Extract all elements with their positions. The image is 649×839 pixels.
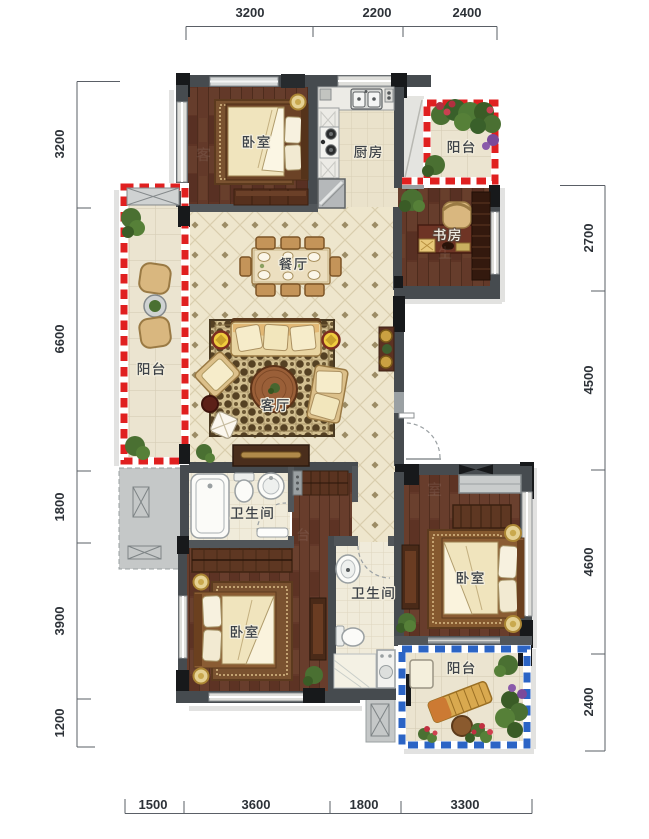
svg-text:3600: 3600 <box>242 797 271 812</box>
svg-text:2400: 2400 <box>581 688 596 717</box>
svg-text:3200: 3200 <box>236 5 265 20</box>
svg-text:4500: 4500 <box>581 366 596 395</box>
svg-text:3300: 3300 <box>451 797 480 812</box>
svg-text:3200: 3200 <box>52 130 67 159</box>
svg-text:2200: 2200 <box>363 5 392 20</box>
svg-text:1500: 1500 <box>139 797 168 812</box>
svg-text:2400: 2400 <box>453 5 482 20</box>
svg-text:1200: 1200 <box>52 709 67 738</box>
svg-text:1800: 1800 <box>52 493 67 522</box>
svg-text:6600: 6600 <box>52 325 67 354</box>
svg-text:3900: 3900 <box>52 607 67 636</box>
svg-text:4600: 4600 <box>581 548 596 577</box>
svg-text:2700: 2700 <box>581 224 596 253</box>
svg-text:1800: 1800 <box>350 797 379 812</box>
